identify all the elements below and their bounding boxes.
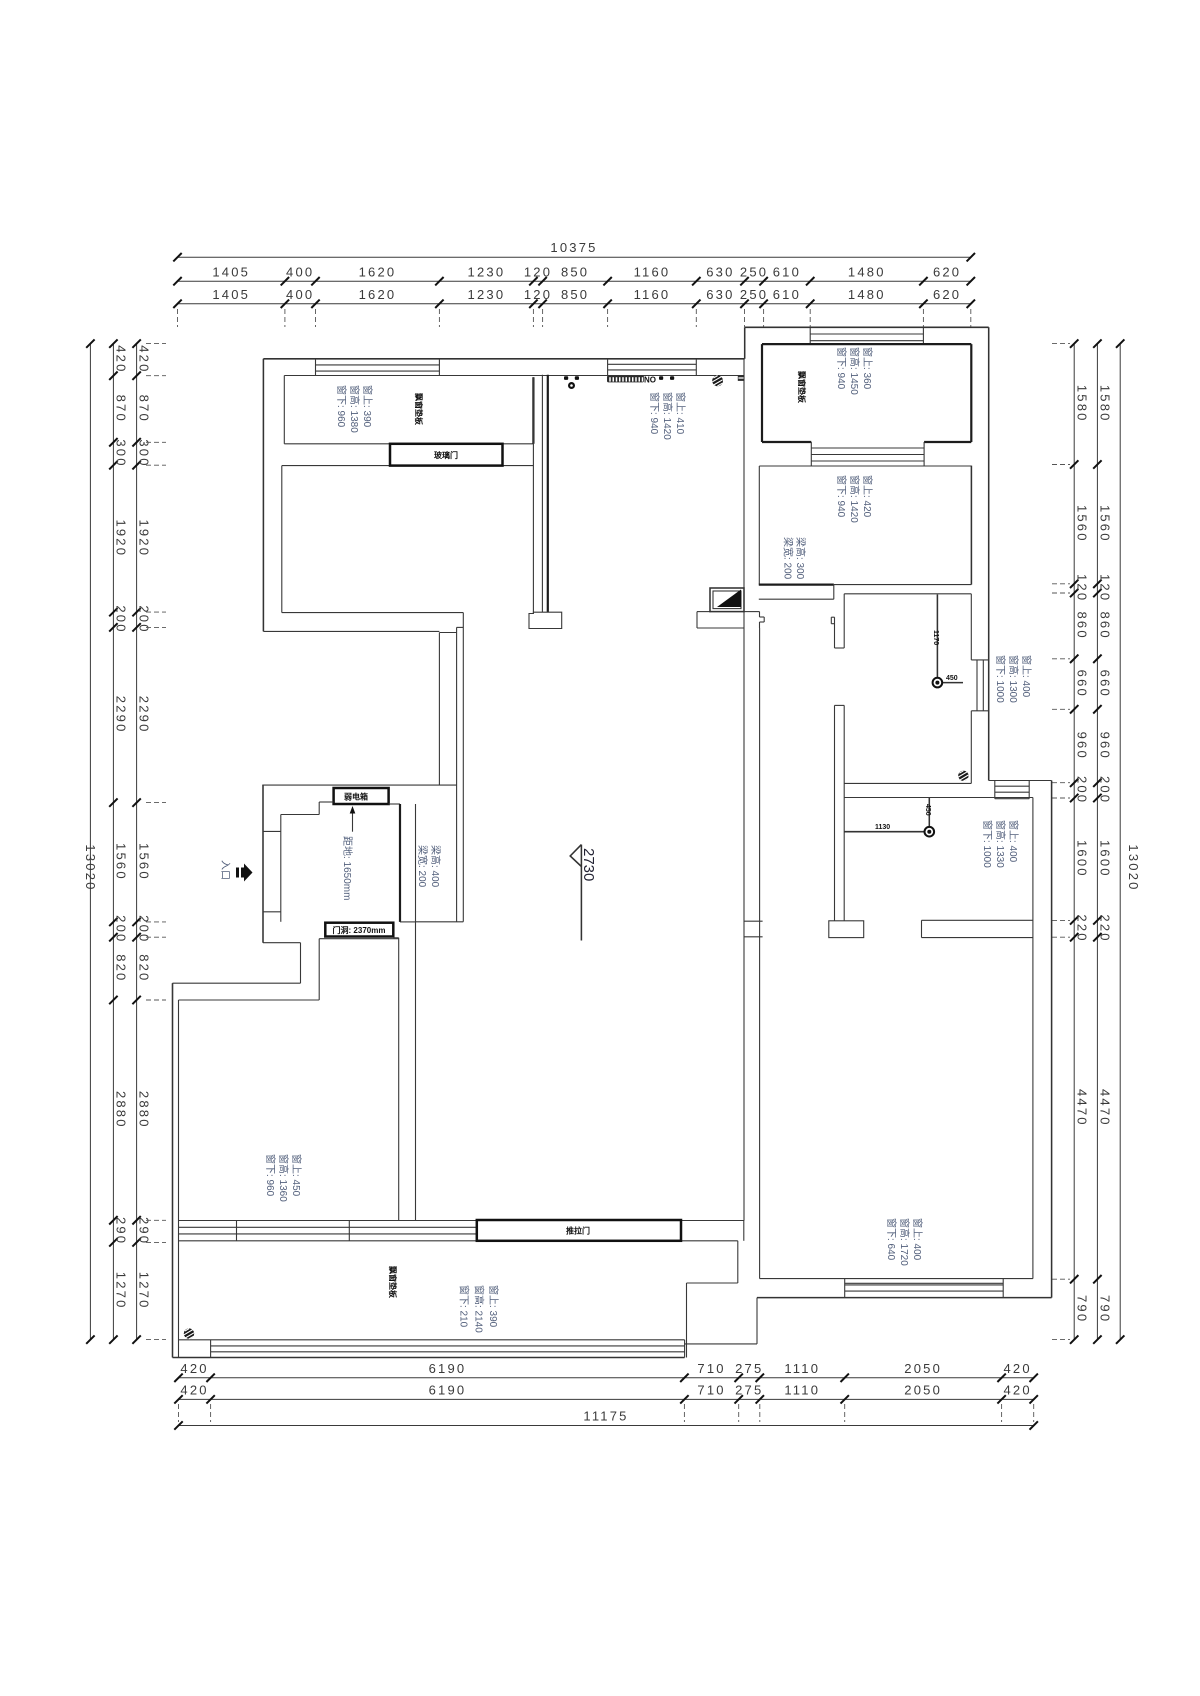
- svg-text:850: 850: [561, 265, 589, 280]
- svg-text:1580: 1580: [1098, 385, 1113, 423]
- svg-text:窗下: 1000: 窗下: 1000: [994, 655, 1007, 703]
- svg-text:2880: 2880: [114, 1091, 129, 1129]
- svg-text:窗高: 1360: 窗高: 1360: [277, 1154, 290, 1202]
- svg-text:200: 200: [137, 915, 152, 943]
- svg-text:2730: 2730: [580, 848, 597, 881]
- svg-text:850: 850: [561, 287, 589, 302]
- svg-text:1160: 1160: [634, 265, 671, 280]
- svg-text:420: 420: [1004, 1383, 1032, 1398]
- svg-text:窗下: 1000: 窗下: 1000: [981, 820, 994, 868]
- svg-text:120: 120: [524, 265, 552, 280]
- svg-text:1230: 1230: [468, 287, 506, 302]
- svg-text:200: 200: [114, 915, 129, 943]
- svg-text:1560: 1560: [1098, 505, 1113, 543]
- svg-text:220: 220: [1074, 914, 1089, 942]
- svg-text:710: 710: [697, 1361, 725, 1376]
- svg-text:420: 420: [180, 1383, 208, 1398]
- svg-text:窗上: 450: 窗上: 450: [290, 1154, 303, 1197]
- svg-text:窗上: 390: 窗上: 390: [487, 1285, 500, 1328]
- svg-text:1170: 1170: [932, 630, 939, 645]
- svg-text:1270: 1270: [114, 1272, 129, 1310]
- svg-text:620: 620: [933, 265, 961, 280]
- svg-text:630: 630: [706, 265, 734, 280]
- svg-text:1620: 1620: [359, 265, 397, 280]
- svg-text:1110: 1110: [784, 1361, 820, 1376]
- svg-text:820: 820: [114, 954, 129, 982]
- svg-text:10375: 10375: [550, 240, 597, 255]
- svg-text:1560: 1560: [1074, 505, 1089, 543]
- svg-text:1480: 1480: [848, 265, 886, 280]
- svg-text:300: 300: [114, 439, 129, 467]
- svg-text:推拉门: 推拉门: [566, 1226, 590, 1236]
- svg-text:120: 120: [1098, 574, 1113, 602]
- svg-text:275: 275: [735, 1361, 763, 1376]
- svg-text:飘窗垫板: 飘窗垫板: [388, 1266, 398, 1299]
- svg-text:2050: 2050: [904, 1383, 942, 1398]
- svg-text:960: 960: [1074, 732, 1089, 760]
- svg-text:窗高: 2140: 窗高: 2140: [472, 1285, 485, 1333]
- svg-text:610: 610: [773, 287, 801, 302]
- svg-text:1270: 1270: [137, 1272, 152, 1310]
- svg-text:2290: 2290: [114, 696, 129, 734]
- svg-text:玻璃门: 玻璃门: [434, 450, 458, 460]
- svg-text:窗高: 1330: 窗高: 1330: [994, 820, 1007, 868]
- svg-text:NO: NO: [644, 375, 656, 384]
- svg-text:弱电箱: 弱电箱: [344, 792, 368, 802]
- svg-text:660: 660: [1074, 670, 1089, 698]
- svg-text:窗高: 1380: 窗高: 1380: [348, 385, 361, 433]
- svg-text:2880: 2880: [137, 1091, 152, 1129]
- svg-text:窗高: 1450: 窗高: 1450: [848, 347, 861, 395]
- svg-text:梁宽: 200: 梁宽: 200: [782, 537, 795, 580]
- svg-text:距地: 1650mm: 距地: 1650mm: [341, 836, 354, 900]
- svg-text:200: 200: [114, 605, 129, 633]
- svg-text:1230: 1230: [468, 265, 506, 280]
- svg-text:4470: 4470: [1074, 1089, 1089, 1127]
- svg-text:窗高: 1720: 窗高: 1720: [898, 1218, 911, 1266]
- svg-text:300: 300: [137, 439, 152, 467]
- svg-text:250: 250: [740, 287, 768, 302]
- svg-text:275: 275: [735, 1383, 763, 1398]
- svg-text:450: 450: [924, 804, 931, 816]
- svg-text:窗上: 360: 窗上: 360: [861, 347, 874, 390]
- svg-text:2290: 2290: [137, 696, 152, 734]
- svg-text:窗上: 400: 窗上: 400: [1007, 820, 1020, 863]
- svg-text:门洞: 2370mm: 门洞: 2370mm: [333, 925, 386, 935]
- svg-text:1160: 1160: [634, 287, 671, 302]
- svg-text:1580: 1580: [1074, 385, 1089, 423]
- svg-text:窗上: 400: 窗上: 400: [911, 1218, 924, 1261]
- svg-text:窗下: 960: 窗下: 960: [264, 1154, 277, 1197]
- svg-text:1600: 1600: [1074, 840, 1089, 878]
- svg-text:窗下: 210: 窗下: 210: [458, 1285, 471, 1328]
- svg-text:790: 790: [1074, 1295, 1089, 1323]
- svg-text:窗上: 420: 窗上: 420: [861, 475, 874, 518]
- svg-text:420: 420: [137, 345, 152, 373]
- svg-text:290: 290: [114, 1217, 129, 1245]
- svg-text:250: 250: [740, 265, 768, 280]
- svg-text:400: 400: [286, 287, 314, 302]
- svg-text:窗下: 940: 窗下: 940: [648, 392, 661, 435]
- svg-text:梁高: 300: 梁高: 300: [794, 537, 807, 580]
- svg-text:1620: 1620: [359, 287, 397, 302]
- svg-text:1920: 1920: [114, 519, 129, 557]
- svg-text:620: 620: [933, 287, 961, 302]
- svg-text:1560: 1560: [137, 843, 152, 881]
- svg-text:梁高: 400: 梁高: 400: [429, 845, 442, 888]
- svg-text:6190: 6190: [429, 1383, 467, 1398]
- svg-text:1130: 1130: [875, 824, 890, 831]
- svg-text:6190: 6190: [429, 1361, 467, 1376]
- svg-text:窗下: 940: 窗下: 940: [835, 475, 848, 518]
- svg-text:1600: 1600: [1098, 840, 1113, 878]
- svg-text:450: 450: [946, 675, 958, 682]
- svg-text:1560: 1560: [114, 843, 129, 881]
- svg-text:入口: 入口: [219, 860, 230, 880]
- svg-text:1405: 1405: [212, 287, 250, 302]
- svg-text:870: 870: [137, 395, 152, 423]
- svg-text:窗下: 940: 窗下: 940: [835, 347, 848, 390]
- svg-text:窗上: 400: 窗上: 400: [1020, 655, 1033, 698]
- svg-text:200: 200: [1098, 776, 1113, 804]
- svg-text:1920: 1920: [137, 519, 152, 557]
- svg-text:窗下: 960: 窗下: 960: [335, 385, 348, 428]
- svg-text:窗上: 390: 窗上: 390: [361, 385, 374, 428]
- svg-text:窗高: 1300: 窗高: 1300: [1007, 655, 1020, 703]
- svg-text:飘窗垫板: 飘窗垫板: [414, 393, 424, 426]
- svg-text:710: 710: [697, 1383, 725, 1398]
- svg-text:420: 420: [114, 345, 129, 373]
- svg-text:860: 860: [1074, 612, 1089, 640]
- svg-text:1480: 1480: [848, 287, 886, 302]
- svg-text:窗上: 410: 窗上: 410: [674, 392, 687, 435]
- svg-text:11175: 11175: [583, 1409, 628, 1424]
- svg-text:630: 630: [706, 287, 734, 302]
- svg-text:窗高: 1420: 窗高: 1420: [848, 475, 861, 523]
- svg-text:400: 400: [286, 265, 314, 280]
- svg-text:960: 960: [1098, 732, 1113, 760]
- svg-text:870: 870: [114, 395, 129, 423]
- svg-text:飘窗垫板: 飘窗垫板: [797, 371, 807, 404]
- svg-text:610: 610: [773, 265, 801, 280]
- svg-text:13020: 13020: [1126, 844, 1141, 891]
- svg-text:120: 120: [524, 287, 552, 302]
- svg-text:660: 660: [1098, 670, 1113, 698]
- svg-text:790: 790: [1098, 1295, 1113, 1323]
- svg-text:200: 200: [137, 605, 152, 633]
- svg-text:1110: 1110: [784, 1383, 820, 1398]
- svg-text:420: 420: [1004, 1361, 1032, 1376]
- svg-text:120: 120: [1074, 574, 1089, 602]
- svg-text:窗高: 1420: 窗高: 1420: [661, 392, 674, 440]
- svg-text:220: 220: [1098, 914, 1113, 942]
- svg-text:200: 200: [1074, 776, 1089, 804]
- svg-text:窗下: 640: 窗下: 640: [885, 1218, 898, 1261]
- svg-text:梁宽: 200: 梁宽: 200: [416, 845, 429, 888]
- svg-text:860: 860: [1098, 612, 1113, 640]
- svg-text:290: 290: [137, 1217, 152, 1245]
- svg-text:420: 420: [180, 1361, 208, 1376]
- svg-text:820: 820: [137, 954, 152, 982]
- svg-text:2050: 2050: [904, 1361, 942, 1376]
- svg-text:1405: 1405: [212, 265, 250, 280]
- svg-text:13020: 13020: [83, 844, 98, 891]
- svg-text:4470: 4470: [1098, 1089, 1113, 1127]
